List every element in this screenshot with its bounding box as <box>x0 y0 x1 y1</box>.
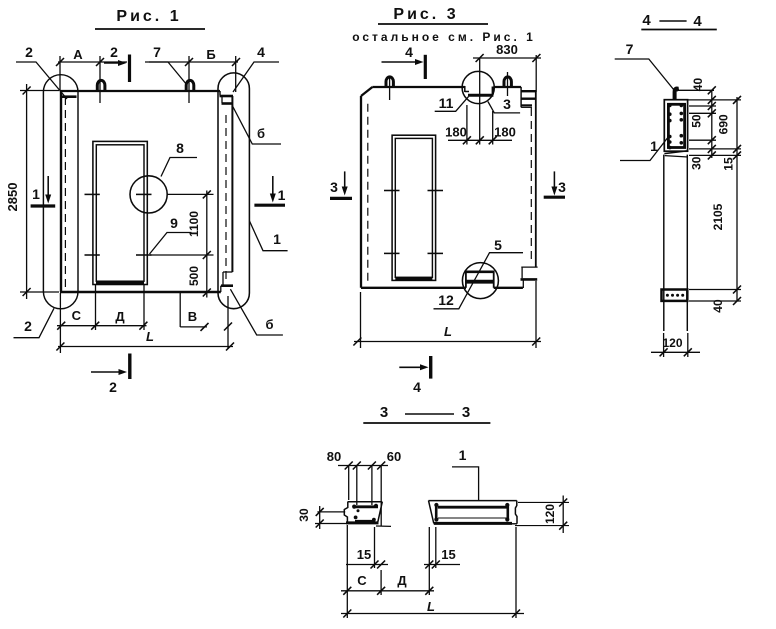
svg-text:3: 3 <box>380 404 388 421</box>
svg-text:Рис. 1: Рис. 1 <box>116 8 181 25</box>
svg-text:3: 3 <box>503 96 511 112</box>
svg-text:11: 11 <box>439 95 454 111</box>
svg-text:2105: 2105 <box>711 203 725 230</box>
svg-text:3: 3 <box>558 179 566 195</box>
svg-text:5: 5 <box>494 237 502 253</box>
svg-text:С: С <box>357 573 367 588</box>
svg-text:1: 1 <box>273 231 281 247</box>
svg-text:Д: Д <box>115 309 125 324</box>
svg-text:2: 2 <box>109 379 117 395</box>
svg-text:120: 120 <box>543 504 557 524</box>
svg-text:7: 7 <box>626 41 634 57</box>
svg-text:2: 2 <box>110 44 118 60</box>
svg-text:3: 3 <box>330 179 338 195</box>
svg-text:60: 60 <box>387 449 401 464</box>
svg-text:8: 8 <box>176 140 184 156</box>
svg-text:С: С <box>72 308 82 323</box>
svg-text:15: 15 <box>722 157 736 171</box>
svg-text:50: 50 <box>690 114 704 128</box>
svg-text:80: 80 <box>327 449 341 464</box>
svg-text:2: 2 <box>25 44 33 60</box>
svg-text:30: 30 <box>690 156 704 170</box>
svg-text:7: 7 <box>153 44 161 60</box>
svg-text:15: 15 <box>441 547 455 562</box>
svg-text:4: 4 <box>257 44 265 60</box>
svg-text:L: L <box>427 599 435 614</box>
svg-text:180: 180 <box>445 125 467 140</box>
svg-text:L: L <box>444 324 452 339</box>
svg-text:2: 2 <box>24 318 32 334</box>
svg-text:А: А <box>73 47 83 62</box>
svg-text:L: L <box>146 329 154 344</box>
svg-text:4: 4 <box>405 44 413 60</box>
svg-text:40: 40 <box>711 299 725 313</box>
svg-text:б: б <box>265 317 273 332</box>
svg-text:1: 1 <box>278 187 286 203</box>
svg-text:12: 12 <box>438 292 454 308</box>
svg-text:4: 4 <box>642 12 651 29</box>
svg-text:9: 9 <box>170 215 178 231</box>
svg-text:180: 180 <box>494 125 516 140</box>
svg-text:40: 40 <box>691 78 705 92</box>
svg-text:Д: Д <box>397 573 407 588</box>
svg-text:30: 30 <box>297 508 311 522</box>
svg-text:1: 1 <box>459 447 467 463</box>
svg-text:4: 4 <box>413 379 421 395</box>
svg-text:690: 690 <box>717 114 731 134</box>
svg-text:4: 4 <box>693 13 702 30</box>
svg-text:1100: 1100 <box>187 211 201 237</box>
svg-text:830: 830 <box>496 42 518 57</box>
svg-text:500: 500 <box>187 266 201 286</box>
svg-text:Б: Б <box>206 47 215 62</box>
svg-text:2850: 2850 <box>5 183 20 212</box>
svg-text:15: 15 <box>357 547 371 562</box>
svg-text:В: В <box>188 309 197 324</box>
svg-text:б: б <box>257 126 265 141</box>
svg-text:3: 3 <box>462 404 470 421</box>
svg-text:Рис. 3: Рис. 3 <box>393 6 458 23</box>
svg-text:1: 1 <box>32 186 40 202</box>
svg-text:120: 120 <box>662 336 682 350</box>
